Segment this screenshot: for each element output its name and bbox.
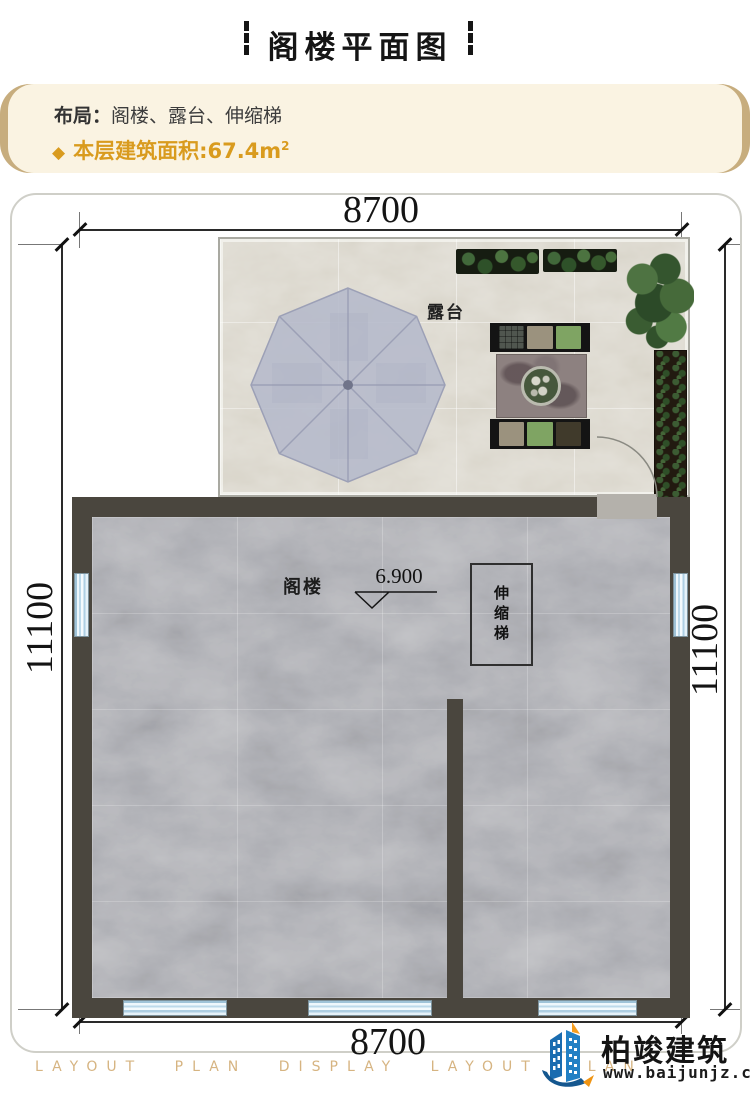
ladder-box: 伸缩梯 [470, 563, 533, 666]
terrace-area: 露台 [218, 237, 690, 497]
planter-box [543, 249, 617, 272]
diamond-icon: ◆ [52, 143, 65, 163]
tree-icon [618, 251, 694, 351]
dim-left-line [61, 245, 63, 1010]
dim-right: 11100 [685, 550, 725, 750]
terrace-door [597, 494, 657, 519]
cushion [527, 326, 552, 349]
area-row: ◆本层建筑面积:67.4m2 [52, 135, 290, 165]
area-text: 本层建筑面积:67.4m [73, 139, 281, 163]
dim-ext [18, 244, 62, 245]
title-dash-right-icon [468, 21, 473, 55]
dim-ext [18, 1009, 62, 1010]
attic-label: 阁楼 [283, 573, 323, 599]
cushion [527, 422, 552, 446]
cushion [556, 326, 581, 349]
bench-bottom [490, 419, 590, 449]
bench-top [490, 323, 590, 352]
hedge-strip [654, 350, 687, 498]
brand-url: www.baijunjz.com [603, 1063, 750, 1082]
dim-top: 8700 [281, 188, 481, 232]
brand-logo-icon [538, 1020, 602, 1092]
floor-tile-grid [92, 517, 670, 998]
window-bottom-3 [538, 1000, 637, 1016]
cushion [556, 422, 581, 446]
floor-plan-page: 阁楼平面图 布局：阁楼、露台、伸缩梯 ◆本层建筑面积:67.4m2 8700 8… [0, 0, 750, 1093]
table-planter-bowl [521, 366, 561, 406]
dim-top-line [80, 229, 682, 231]
window-right [673, 573, 688, 637]
elevation-value: 6.900 [358, 564, 440, 589]
window-bottom-2 [308, 1000, 432, 1016]
layout-value: 阁楼、露台、伸缩梯 [111, 105, 282, 127]
cushion [499, 422, 524, 446]
cushion [499, 326, 524, 349]
layout-label: 布局： [54, 105, 111, 127]
terrace-label: 露台 [427, 298, 465, 323]
ladder-label: 伸缩梯 [491, 585, 512, 645]
umbrella-icon [246, 283, 450, 487]
title-dash-left-icon [244, 21, 249, 55]
dim-bottom: 8700 [288, 1020, 488, 1064]
dim-left: 11100 [20, 528, 60, 728]
area-sup: 2 [281, 139, 289, 153]
page-title: 阁楼平面图 [255, 22, 465, 67]
planter-box [456, 249, 539, 274]
window-bottom-1 [123, 1000, 227, 1016]
outdoor-table [496, 354, 587, 418]
wall-divider [447, 699, 463, 998]
window-left [74, 573, 89, 637]
layout-row: 布局：阁楼、露台、伸缩梯 [54, 101, 282, 128]
attic-floor [92, 517, 670, 998]
